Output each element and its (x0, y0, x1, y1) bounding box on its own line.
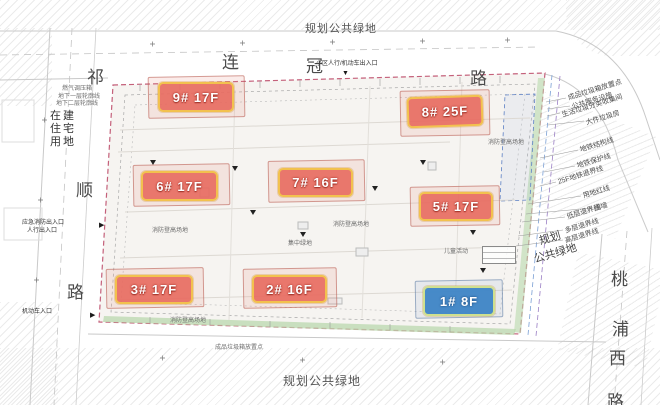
fire-area-label-4: 消防登高场地 (170, 318, 206, 325)
fire-area-label-3: 消防登高场地 (488, 140, 524, 147)
entrance-left-triangle-icon: ▶ (99, 222, 104, 229)
road-right-char-3: 西 (609, 344, 626, 369)
fire-area-label-2: 消防登高场地 (333, 222, 369, 229)
entrance-left-pedestrian-label: 人行出入口 (27, 228, 57, 235)
road-top-char-3: 路 (470, 64, 487, 89)
building-label-2: 2# 16F (252, 275, 327, 303)
building-label-8: 8# 25F (406, 95, 483, 129)
road-right-char-4: 路 (607, 387, 624, 405)
building-label-3: 3# 17F (115, 275, 193, 304)
top-green-label: 规划公共绿地 (305, 20, 377, 36)
building-label-6: 6# 17F (141, 171, 218, 201)
central-green-label: 集中绿地 (288, 241, 312, 248)
left-parcel-line-3: 用地 (50, 136, 76, 149)
bottom-green-label: 规划公共绿地 (283, 372, 361, 389)
building-label-5: 5# 17F (419, 192, 493, 221)
kids-area-label: 儿童活动 (444, 249, 468, 256)
entrance-vehicle-label: 机动车入口 (22, 309, 52, 316)
basement1-label: 地下一层轮廓线 (58, 94, 100, 101)
trash-point-bottom-label: 成品垃圾箱放置点 (215, 345, 263, 352)
entrance-top-triangle-icon: ▼ (342, 70, 349, 77)
road-left-char-2: 顺 (76, 176, 93, 201)
site-plan: 9# 17F 8# 25F 6# 17F 7# 16F 5# 17F 3# 17… (0, 0, 660, 405)
road-left-char-3: 路 (67, 278, 84, 303)
basement2-label: 地下二层轮廓线 (56, 101, 98, 108)
building-label-1: 1# 8F (423, 286, 495, 316)
entrance-top-label: 小区人行/机动车出入口 (316, 61, 378, 68)
road-left-char-1: 祁 (87, 63, 104, 88)
building-label-9: 9# 17F (158, 82, 234, 112)
road-right-char-1: 桃 (611, 265, 628, 290)
gas-box-label: 燃气调压箱 (62, 86, 92, 93)
entrance-vehicle-triangle-icon: ▶ (90, 312, 95, 319)
left-parcel-line-1: 在建 (50, 110, 76, 123)
fire-area-label-1: 消防登高场地 (152, 228, 188, 235)
road-right-char-2: 浦 (612, 315, 629, 340)
entrance-left-emergency-label: 应急消防出入口 (22, 220, 64, 227)
left-parcel-label: 在建 住宅 用地 (50, 110, 76, 149)
left-parcel-line-2: 住宅 (50, 123, 76, 136)
road-top-char-1: 连 (222, 48, 239, 73)
detail-note-box (482, 246, 516, 264)
building-label-7: 7# 16F (278, 168, 353, 197)
